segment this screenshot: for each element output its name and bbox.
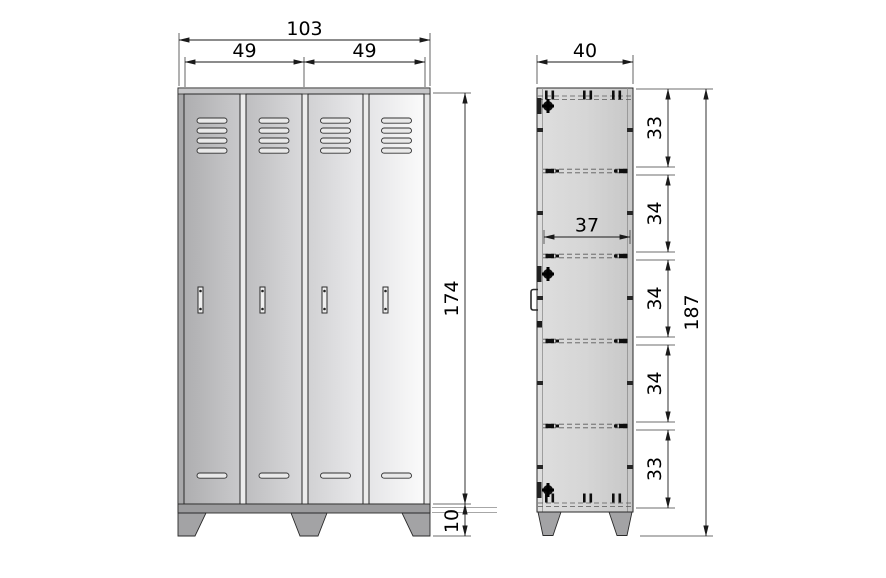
front-bottom-rail [178,504,430,513]
dim-label-door-width-right: 49 [352,40,376,62]
dim-label-section-3: 34 [644,286,666,310]
front-view [178,88,430,536]
door-handle [383,287,388,313]
dim-label-section-4: 34 [644,371,666,395]
dim-front-body-height: 174 [433,93,471,504]
front-foot-right [402,513,430,536]
side-view [531,88,633,536]
locker-drawing-canvas: 103 49 49 174 10 [0,0,886,578]
front-door-1 [184,94,240,504]
dim-front-door-widths: 49 49 [185,40,425,87]
dim-label-section-1: 33 [644,116,666,140]
front-top-lip [178,88,430,94]
dim-label-section-2: 34 [644,201,666,225]
dim-label-section-5: 33 [644,457,666,481]
front-foot-center [291,513,327,536]
side-latch [537,321,543,328]
dim-front-total-width: 103 [179,18,430,86]
front-foot-left [178,513,206,536]
dim-label-front-body-height: 174 [441,280,463,316]
front-door-2 [246,94,302,504]
dim-label-side-depth: 40 [573,40,597,62]
door-handle [198,287,203,313]
dim-label-front-total-width: 103 [286,18,322,40]
dim-label-side-total-height: 187 [681,294,703,330]
front-door-3 [308,94,363,504]
door-handle [322,287,327,313]
front-door-4 [369,94,424,504]
front-right-side-strip [424,88,430,512]
dim-label-side-interior-depth: 37 [575,215,599,237]
side-foot-back [609,512,632,536]
front-feet [178,513,430,536]
dim-front-feet-height: 10 [432,504,497,536]
side-foot-front [538,512,561,536]
side-feet [538,512,632,536]
door-handle [260,287,265,313]
dim-label-front-feet-height: 10 [441,509,463,533]
technical-drawing-page: 103 49 49 174 10 [0,0,886,578]
dim-side-depth: 40 [537,40,633,84]
side-panel [537,88,633,512]
front-left-side-strip [178,88,184,512]
dim-label-door-width-left: 49 [232,40,256,62]
